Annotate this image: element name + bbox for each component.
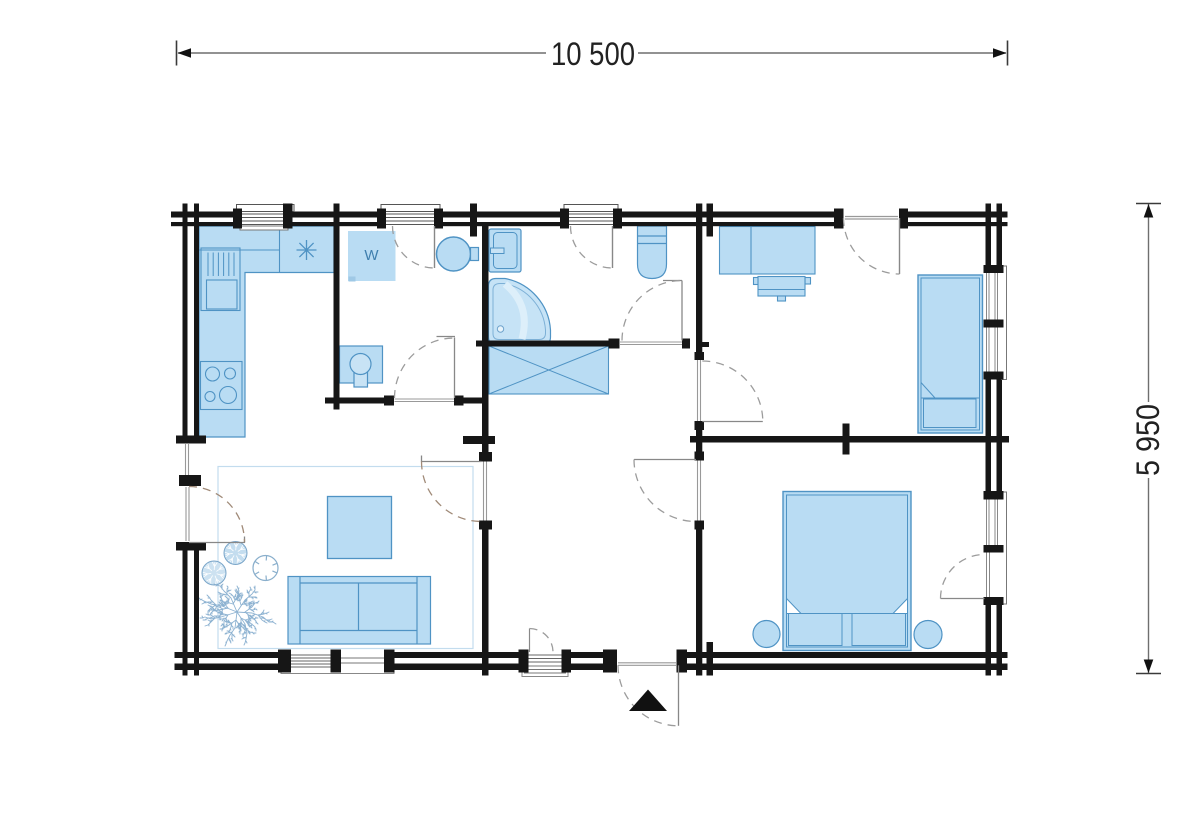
svg-text:W: W [364, 247, 379, 264]
svg-text:5 950: 5 950 [1130, 404, 1166, 476]
svg-text:10 500: 10 500 [551, 36, 635, 72]
